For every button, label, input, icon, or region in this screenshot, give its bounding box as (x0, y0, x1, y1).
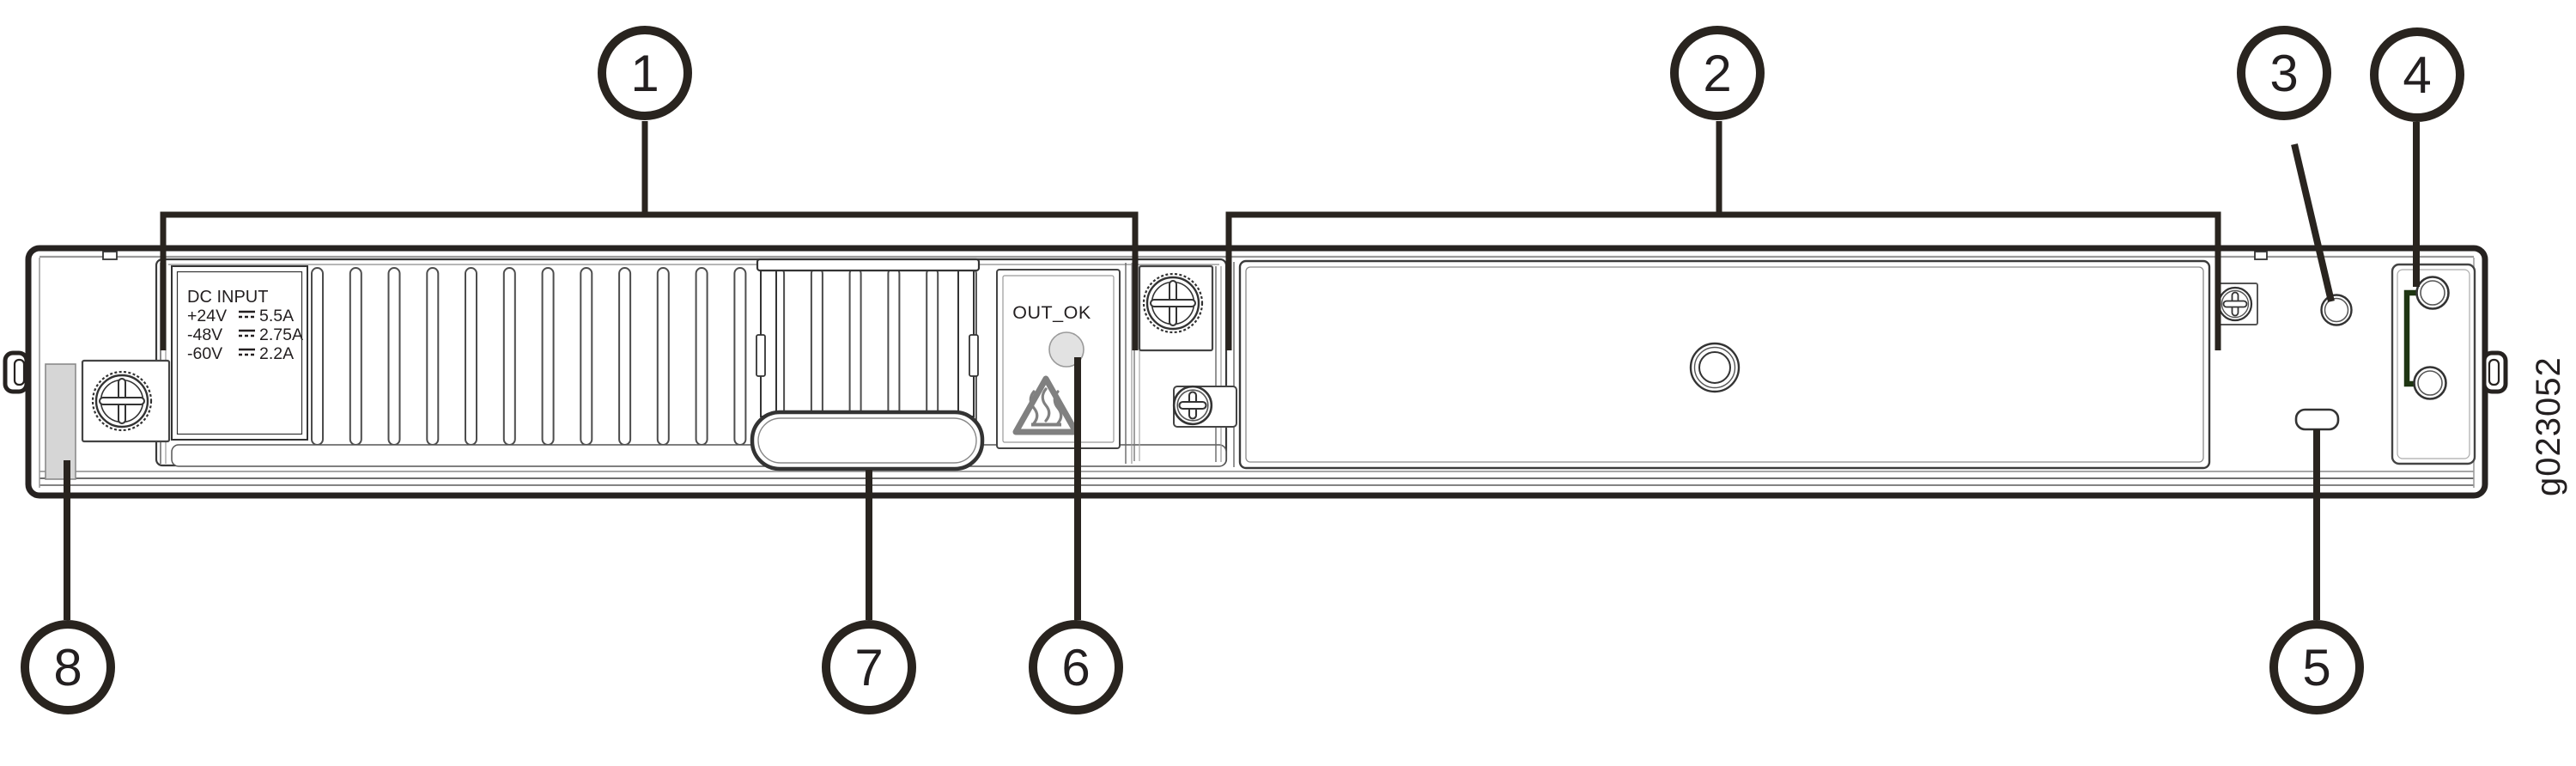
out-ok-label: OUT_OK (1012, 302, 1091, 323)
blank-cover-panel (1240, 261, 2209, 468)
callout-3: 3 (2241, 30, 2327, 116)
power-supply-module: DC INPUT +24V 5.5A -48V 2.75A -60V (82, 259, 1236, 469)
callout-1-number: 1 (630, 45, 659, 102)
handle-left-latch (756, 335, 765, 376)
dc-current: 5.5A (259, 307, 294, 325)
side-latch-right (2484, 353, 2506, 392)
handle-top-bar (757, 259, 979, 271)
out-ok-panel: OUT_OK (997, 263, 1132, 464)
callout-1: 1 (602, 30, 688, 116)
dc-voltage: -60V (187, 344, 222, 363)
security-slot (2296, 410, 2338, 429)
vent-slot (580, 268, 592, 445)
side-latch-left (5, 353, 27, 392)
callout-6-number: 6 (1061, 639, 1090, 696)
top-edge-notch-left (103, 252, 117, 259)
psu-left-thumbscrew (82, 361, 169, 441)
callout-2-number: 2 (1703, 45, 1731, 102)
panel-finger-hole (1691, 343, 1739, 392)
callout-7: 7 (826, 624, 912, 710)
rear-panel-figure: DC INPUT +24V 5.5A -48V 2.75A -60V (0, 0, 2576, 766)
top-edge-notch-right (2255, 252, 2267, 259)
grounding-lug-panel (2392, 264, 2475, 464)
dc-input-title: DC INPUT (187, 288, 268, 307)
handle-right-latch (969, 335, 978, 376)
vent-slot (696, 268, 708, 445)
dc-voltage: -48V (187, 325, 222, 344)
grounding-hole-top (2417, 277, 2449, 309)
vent-slot (543, 268, 554, 445)
vent-slot (312, 268, 323, 445)
vent-slot (427, 268, 438, 445)
vent-slot (734, 268, 745, 445)
callout-8: 8 (25, 624, 111, 710)
esd-point-hole (2322, 295, 2352, 325)
vent-slot (658, 268, 669, 445)
right-phillips-screw (2218, 283, 2257, 325)
vent-slot (465, 268, 477, 445)
label-strip (46, 364, 76, 479)
callout-6: 6 (1033, 624, 1119, 710)
vent-slot (350, 268, 361, 445)
handle-grip-bar (752, 412, 982, 469)
vent-slot (619, 268, 630, 445)
dc-current: 2.2A (259, 344, 294, 363)
dc-input-label: DC INPUT +24V 5.5A -48V 2.75A -60V (172, 266, 307, 440)
callout-2: 2 (1674, 30, 1760, 116)
callout-8-number: 8 (53, 639, 82, 696)
grounding-hole-bottom (2415, 368, 2446, 399)
center-phillips-screw (1174, 386, 1236, 427)
callout-7-number: 7 (854, 639, 883, 696)
dc-current: 2.75A (259, 325, 303, 344)
dc-voltage: +24V (187, 307, 227, 325)
callout-5-number: 5 (2302, 639, 2330, 696)
figure-id: g023052 (2530, 356, 2567, 496)
vent-slot (389, 268, 400, 445)
center-thumbscrew (1139, 266, 1212, 350)
callout-4-number: 4 (2403, 46, 2431, 104)
callout-5: 5 (2274, 624, 2360, 710)
vent-slot (504, 268, 515, 445)
callout-3-number: 3 (2269, 45, 2298, 102)
callout-4: 4 (2374, 32, 2460, 118)
